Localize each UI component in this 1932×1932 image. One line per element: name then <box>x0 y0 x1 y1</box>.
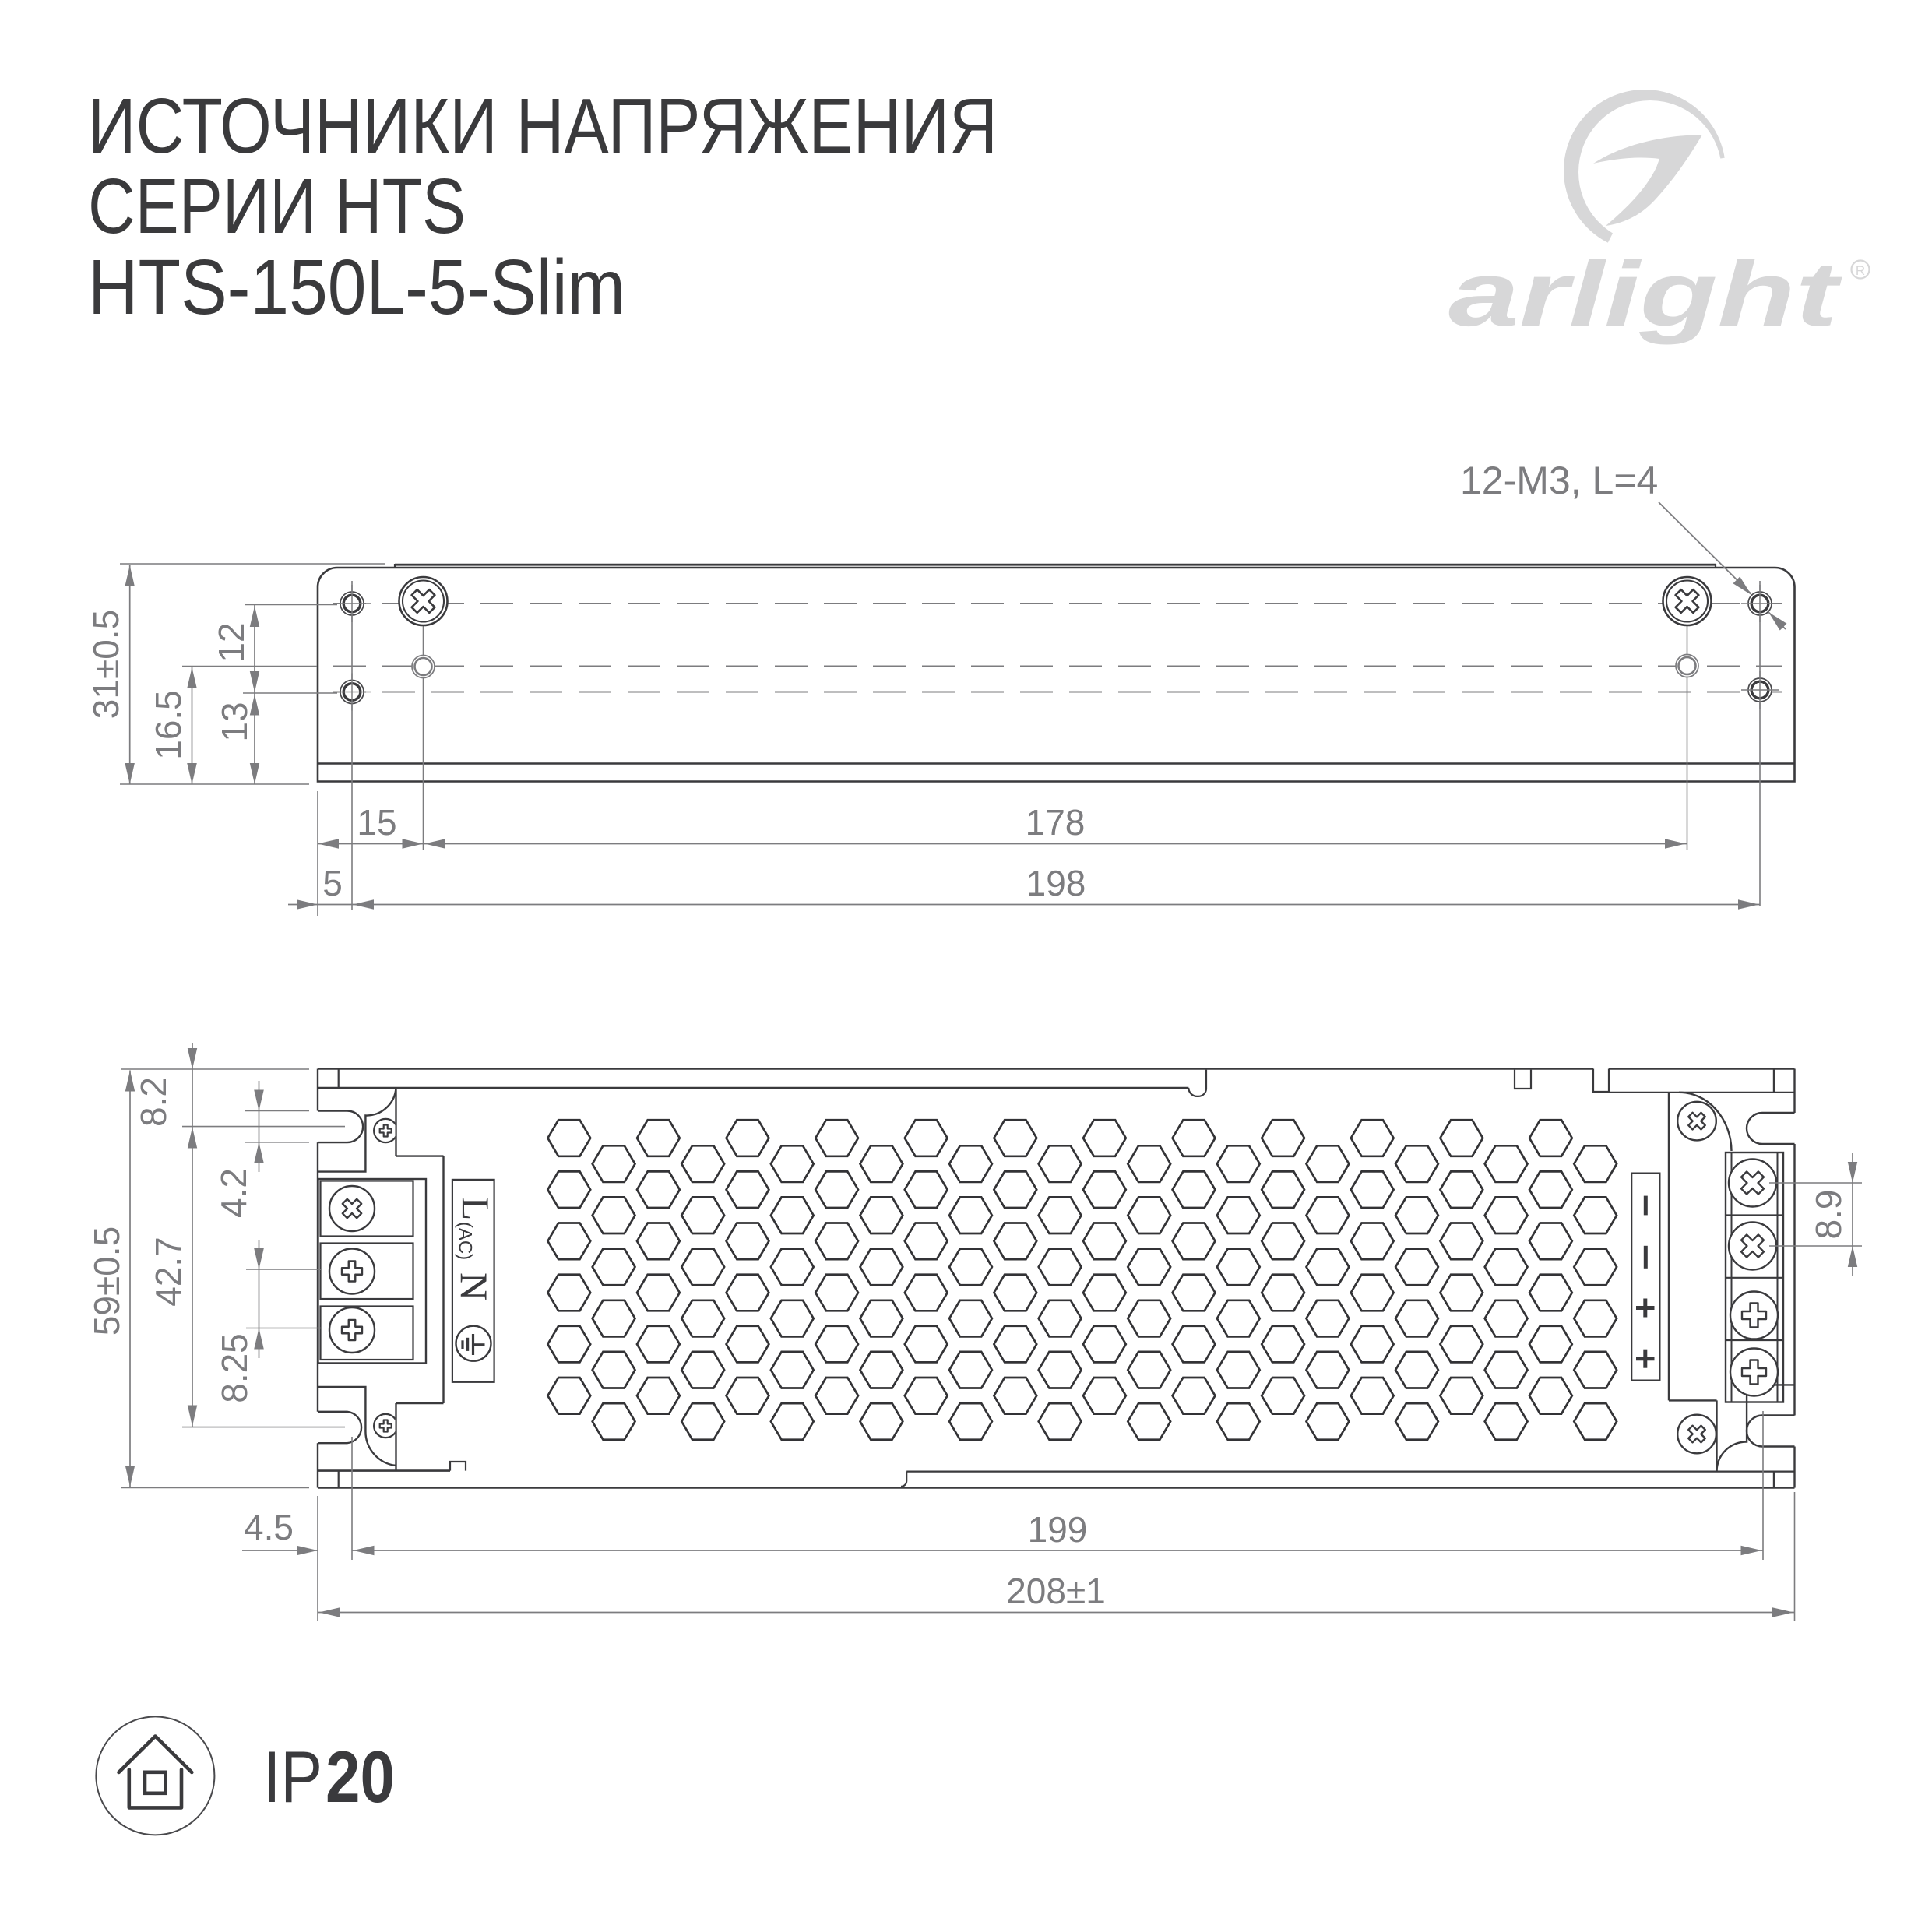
svg-text:ИСТОЧНИКИ НАПРЯЖЕНИЯ: ИСТОЧНИКИ НАПРЯЖЕНИЯ <box>88 83 998 170</box>
svg-text:13: 13 <box>214 702 255 741</box>
svg-text:8.25: 8.25 <box>214 1333 255 1403</box>
svg-text:178: 178 <box>1026 802 1086 843</box>
svg-text:4.5: 4.5 <box>244 1507 294 1547</box>
svg-text:L: L <box>454 1197 498 1221</box>
svg-text:5: 5 <box>322 863 343 903</box>
svg-text:16.5: 16.5 <box>148 690 188 760</box>
svg-text:15: 15 <box>357 802 396 843</box>
svg-text:59±0.5: 59±0.5 <box>86 1226 127 1336</box>
svg-text:(AC): (AC) <box>455 1222 476 1260</box>
svg-text:8.9: 8.9 <box>1808 1190 1849 1240</box>
svg-text:8.2: 8.2 <box>133 1077 174 1127</box>
svg-text:12-M3, L=4: 12-M3, L=4 <box>1460 459 1658 502</box>
svg-text:42.7: 42.7 <box>148 1237 188 1307</box>
svg-text:208±1: 208±1 <box>1006 1571 1106 1611</box>
svg-text:arlight: arlight <box>1448 243 1843 346</box>
svg-text:IP: IP <box>263 1736 322 1818</box>
svg-text:HTS-150L-5-Slim: HTS-150L-5-Slim <box>88 244 625 331</box>
svg-text:4.2: 4.2 <box>213 1168 254 1218</box>
svg-text:31±0.5: 31±0.5 <box>86 610 126 719</box>
svg-text:199: 199 <box>1028 1509 1088 1550</box>
svg-text:198: 198 <box>1026 863 1086 903</box>
svg-text:СЕРИИ HTS: СЕРИИ HTS <box>88 163 466 250</box>
svg-text:12: 12 <box>211 622 252 662</box>
svg-text:N: N <box>452 1272 496 1300</box>
svg-text:R: R <box>1856 263 1865 278</box>
svg-text:20: 20 <box>326 1736 395 1818</box>
